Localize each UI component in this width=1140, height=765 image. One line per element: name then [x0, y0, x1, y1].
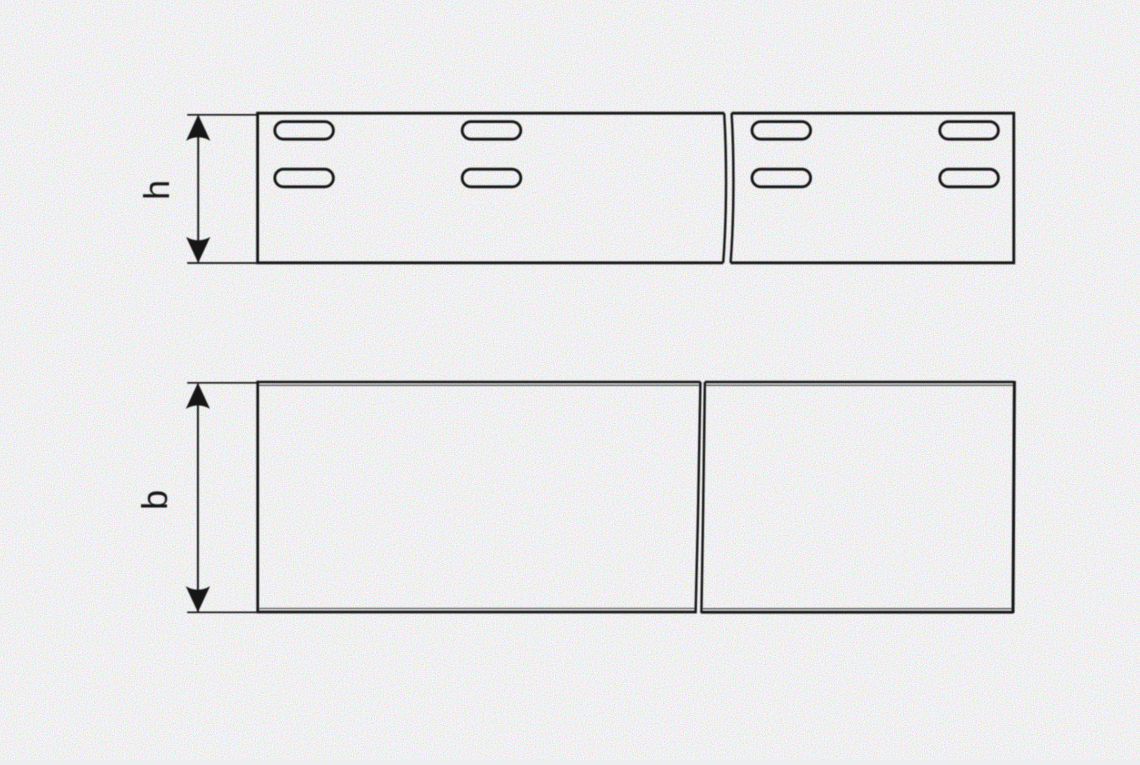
svg-text:b: b	[134, 490, 175, 510]
svg-text:h: h	[136, 180, 177, 200]
